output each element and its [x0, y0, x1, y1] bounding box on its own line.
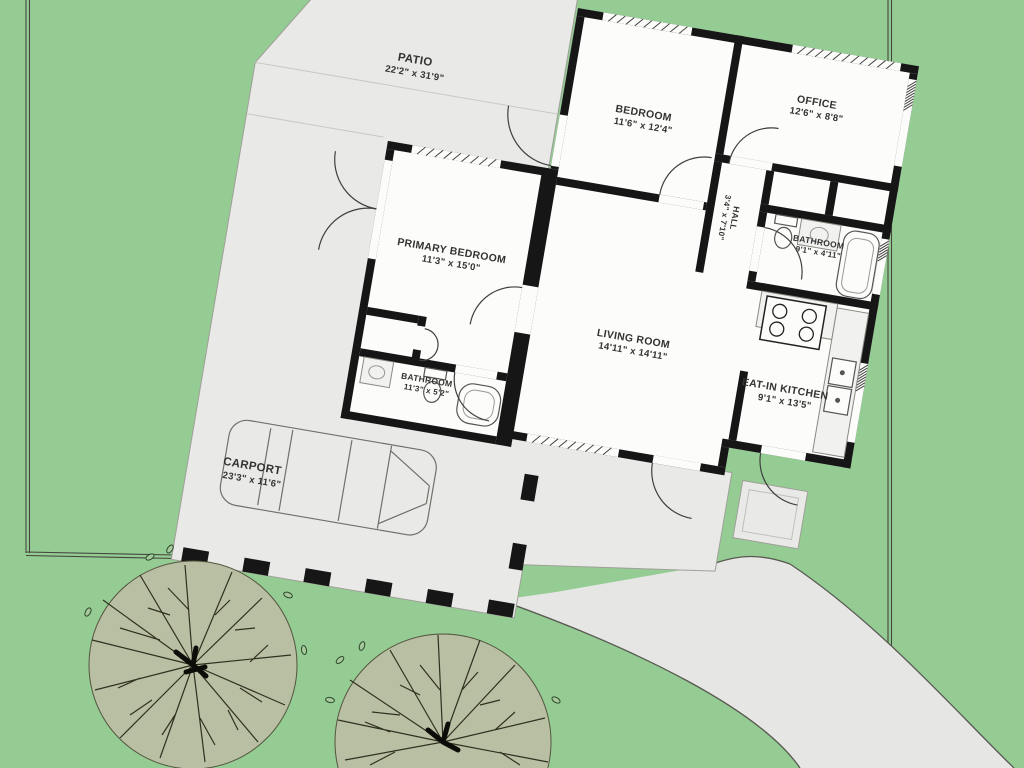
- site-plan-image: PATIO 22'2" x 31'9" BEDROOM 11'6" x 12'4…: [0, 0, 1024, 768]
- stove: [760, 296, 827, 349]
- bathroom-vanity: [360, 357, 394, 388]
- floor-plan-canvas: PATIO 22'2" x 31'9" BEDROOM 11'6" x 12'4…: [0, 0, 1024, 768]
- bathtub: [455, 382, 503, 429]
- kitchen-stoop: [733, 481, 808, 549]
- wall-closet-nook-right-a: [417, 316, 427, 327]
